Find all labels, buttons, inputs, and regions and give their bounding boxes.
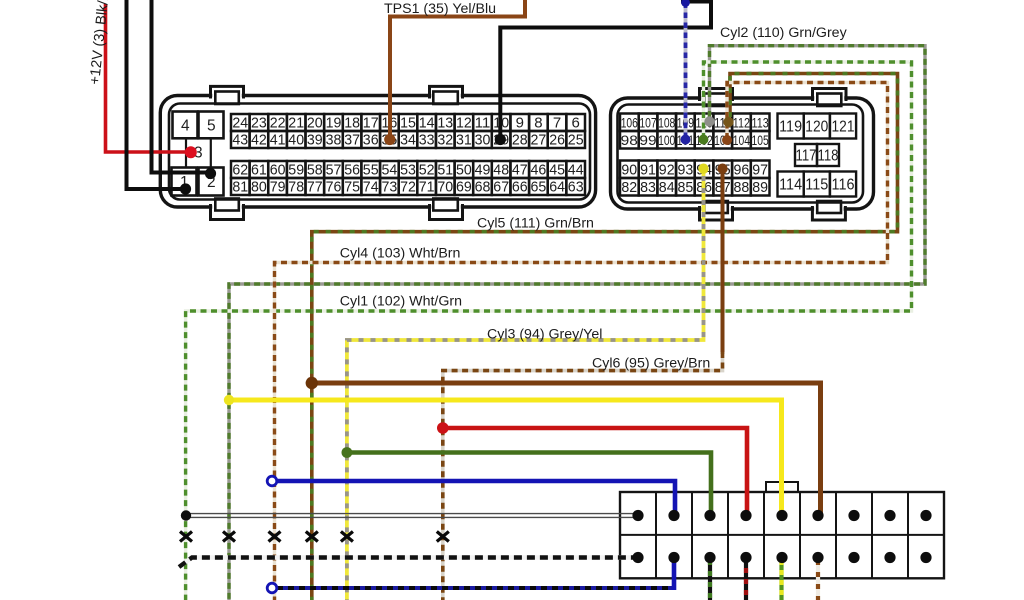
svg-text:56: 56	[344, 162, 360, 179]
svg-text:9: 9	[516, 115, 524, 132]
svg-text:89: 89	[752, 179, 768, 196]
svg-text:28: 28	[512, 132, 528, 149]
svg-text:73: 73	[382, 179, 398, 196]
svg-text:121: 121	[832, 119, 855, 136]
svg-text:119: 119	[779, 119, 802, 136]
svg-text:96: 96	[734, 161, 750, 178]
svg-text:55: 55	[363, 162, 379, 179]
svg-text:17: 17	[363, 115, 379, 132]
svg-text:68: 68	[475, 179, 491, 196]
svg-text:4: 4	[181, 118, 190, 135]
svg-text:91: 91	[640, 161, 656, 178]
svg-text:22: 22	[270, 115, 286, 132]
svg-text:80: 80	[251, 179, 267, 196]
svg-text:44: 44	[568, 162, 584, 179]
svg-text:77: 77	[307, 179, 323, 196]
svg-text:49: 49	[475, 162, 491, 179]
svg-text:62: 62	[232, 162, 248, 179]
svg-text:Cyl2 (110) Grn/Grey: Cyl2 (110) Grn/Grey	[720, 25, 848, 41]
svg-text:106: 106	[621, 115, 638, 131]
svg-text:79: 79	[270, 179, 286, 196]
svg-text:108: 108	[658, 115, 675, 131]
svg-text:83: 83	[640, 179, 656, 196]
svg-text:7: 7	[553, 115, 561, 132]
svg-text:76: 76	[326, 179, 342, 196]
svg-text:30: 30	[475, 132, 491, 149]
svg-text:71: 71	[419, 179, 435, 196]
svg-text:74: 74	[363, 179, 379, 196]
svg-text:88: 88	[734, 179, 750, 196]
svg-text:51: 51	[437, 162, 453, 179]
svg-text:53: 53	[400, 162, 416, 179]
svg-text:46: 46	[531, 162, 547, 179]
svg-text:61: 61	[251, 162, 267, 179]
svg-text:117: 117	[796, 148, 817, 165]
svg-text:6: 6	[572, 115, 580, 132]
svg-text:11: 11	[475, 115, 491, 132]
svg-text:65: 65	[531, 179, 547, 196]
svg-text:84: 84	[659, 179, 675, 196]
svg-text:90: 90	[621, 161, 637, 178]
svg-text:93: 93	[678, 161, 694, 178]
svg-text:85: 85	[678, 179, 694, 196]
svg-text:58: 58	[307, 162, 323, 179]
svg-text:63: 63	[568, 179, 584, 196]
svg-text:48: 48	[493, 162, 509, 179]
svg-text:82: 82	[621, 179, 637, 196]
svg-text:42: 42	[251, 132, 267, 149]
svg-text:67: 67	[493, 179, 509, 196]
svg-text:115: 115	[805, 177, 828, 194]
svg-text:5: 5	[207, 118, 216, 135]
svg-text:TPS1 (35) Yel/Blu: TPS1 (35) Yel/Blu	[384, 1, 496, 17]
svg-text:120: 120	[805, 119, 828, 136]
svg-text:59: 59	[288, 162, 304, 179]
svg-text:14: 14	[419, 115, 435, 132]
svg-text:Cyl1 (102) Wht/Grn: Cyl1 (102) Wht/Grn	[340, 294, 462, 310]
svg-text:98: 98	[621, 132, 638, 148]
svg-text:92: 92	[659, 161, 675, 178]
svg-text:Cyl5 (111) Grn/Brn: Cyl5 (111) Grn/Brn	[477, 216, 594, 232]
svg-text:32: 32	[437, 132, 453, 149]
svg-text:31: 31	[456, 132, 472, 149]
svg-text:Cyl6 (95) Grey/Brn: Cyl6 (95) Grey/Brn	[592, 356, 710, 372]
svg-text:97: 97	[752, 161, 768, 178]
svg-text:72: 72	[400, 179, 416, 196]
svg-text:38: 38	[326, 132, 342, 149]
svg-text:37: 37	[344, 132, 360, 149]
svg-text:Cyl4 (103) Wht/Brn: Cyl4 (103) Wht/Brn	[340, 246, 461, 262]
svg-text:41: 41	[270, 132, 286, 149]
svg-text:107: 107	[639, 115, 656, 131]
svg-text:39: 39	[307, 132, 323, 149]
svg-text:66: 66	[512, 179, 528, 196]
svg-text:99: 99	[639, 132, 656, 148]
svg-text:13: 13	[437, 115, 453, 132]
svg-text:20: 20	[307, 115, 323, 132]
svg-text:78: 78	[288, 179, 304, 196]
svg-text:40: 40	[288, 132, 304, 149]
svg-text:12: 12	[456, 115, 472, 132]
svg-text:70: 70	[437, 179, 453, 196]
svg-text:114: 114	[779, 177, 802, 194]
svg-text:36: 36	[363, 132, 379, 149]
svg-text:26: 26	[549, 132, 565, 149]
svg-text:43: 43	[232, 132, 248, 149]
svg-text:34: 34	[400, 132, 416, 149]
svg-text:100: 100	[658, 132, 675, 148]
svg-text:15: 15	[400, 115, 416, 132]
svg-text:116: 116	[832, 177, 855, 194]
svg-text:45: 45	[549, 162, 565, 179]
svg-text:8: 8	[534, 115, 542, 132]
svg-text:Cyl3 (94) Grey/Yel: Cyl3 (94) Grey/Yel	[487, 327, 602, 343]
svg-text:104: 104	[733, 132, 750, 148]
svg-text:57: 57	[326, 162, 342, 179]
svg-text:60: 60	[270, 162, 286, 179]
svg-text:81: 81	[232, 179, 248, 196]
svg-text:47: 47	[512, 162, 528, 179]
svg-text:118: 118	[818, 148, 839, 165]
svg-text:69: 69	[456, 179, 472, 196]
svg-text:54: 54	[382, 162, 398, 179]
svg-text:18: 18	[344, 115, 360, 132]
svg-text:25: 25	[568, 132, 584, 149]
svg-text:64: 64	[549, 179, 565, 196]
svg-text:50: 50	[456, 162, 472, 179]
svg-text:19: 19	[326, 115, 342, 132]
svg-text:113: 113	[752, 115, 769, 131]
svg-text:23: 23	[251, 115, 267, 132]
svg-text:105: 105	[752, 132, 769, 148]
svg-text:52: 52	[419, 162, 435, 179]
svg-text:27: 27	[531, 132, 547, 149]
svg-text:112: 112	[733, 115, 750, 131]
svg-text:75: 75	[344, 179, 360, 196]
svg-text:21: 21	[288, 115, 304, 132]
svg-text:33: 33	[419, 132, 435, 149]
svg-text:24: 24	[232, 115, 248, 132]
